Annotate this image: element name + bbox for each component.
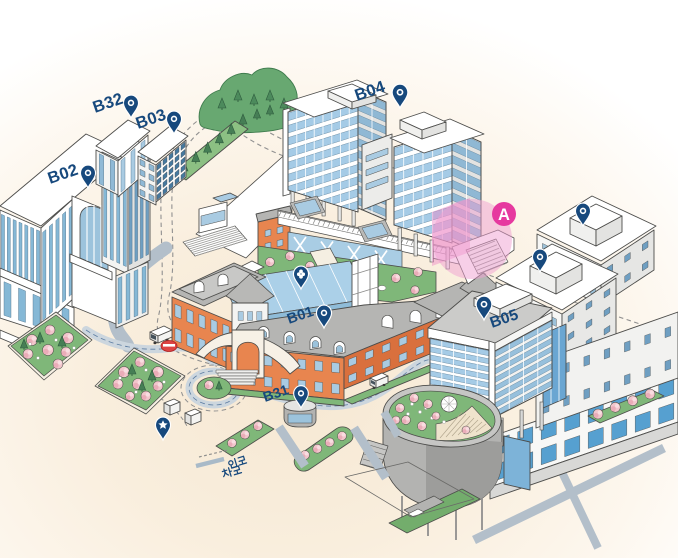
svg-text:A: A <box>498 206 510 224</box>
